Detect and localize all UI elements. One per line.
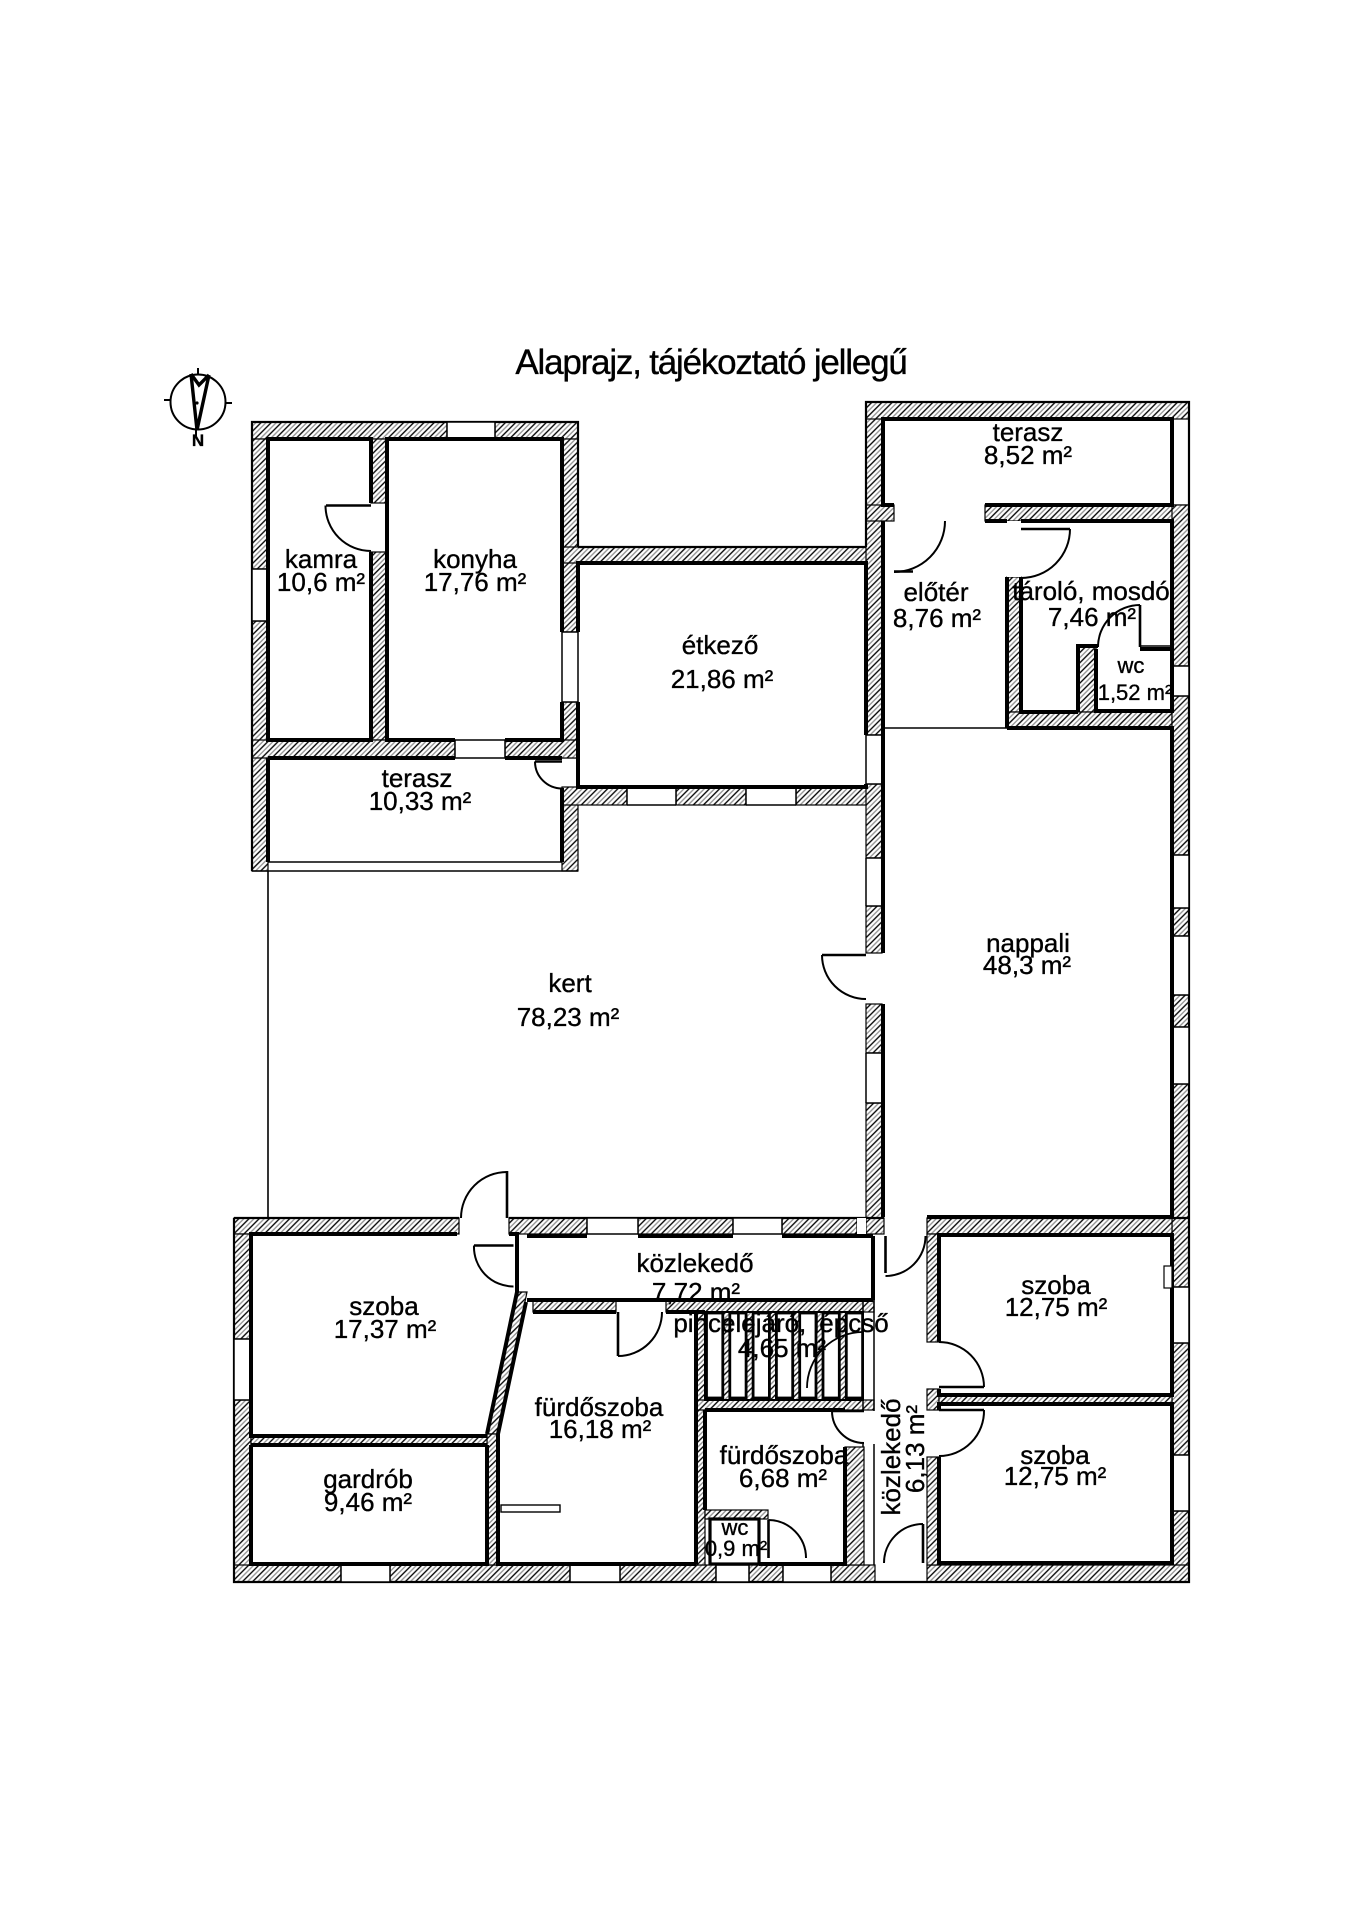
svg-text:21,86 m²: 21,86 m² (671, 664, 774, 694)
svg-text:16,18 m²: 16,18 m² (549, 1414, 652, 1444)
svg-text:0,9 m²: 0,9 m² (705, 1536, 767, 1561)
svg-text:12,75 m²: 12,75 m² (1004, 1461, 1107, 1491)
svg-text:10,6 m²: 10,6 m² (277, 567, 365, 597)
svg-text:4,65 m²: 4,65 m² (738, 1333, 826, 1363)
svg-text:étkező: étkező (682, 630, 759, 660)
svg-text:10,33 m²: 10,33 m² (369, 786, 472, 816)
svg-text:17,76 m²: 17,76 m² (424, 567, 527, 597)
svg-text:8,76 m²: 8,76 m² (893, 603, 981, 633)
svg-text:Alaprajz, tájékoztató jellegű: Alaprajz, tájékoztató jellegű (515, 343, 907, 382)
svg-text:wc: wc (1117, 653, 1145, 678)
svg-text:7,46 m²: 7,46 m² (1048, 602, 1136, 632)
svg-text:78,23 m²: 78,23 m² (517, 1002, 620, 1032)
svg-text:12,75 m²: 12,75 m² (1005, 1292, 1108, 1322)
svg-text:kert: kert (548, 968, 592, 998)
svg-text:N: N (192, 431, 204, 450)
svg-text:7,72 m²: 7,72 m² (652, 1277, 740, 1307)
svg-text:9,46 m²: 9,46 m² (324, 1487, 412, 1517)
svg-text:1,52 m²: 1,52 m² (1098, 680, 1173, 705)
svg-text:6,13 m²: 6,13 m² (900, 1405, 930, 1493)
svg-text:8,52 m²: 8,52 m² (984, 440, 1072, 470)
svg-text:6,68 m²: 6,68 m² (739, 1463, 827, 1493)
svg-text:17,37 m²: 17,37 m² (334, 1314, 437, 1344)
svg-text:közlekedő: közlekedő (636, 1248, 753, 1278)
svg-text:48,3 m²: 48,3 m² (983, 950, 1071, 980)
